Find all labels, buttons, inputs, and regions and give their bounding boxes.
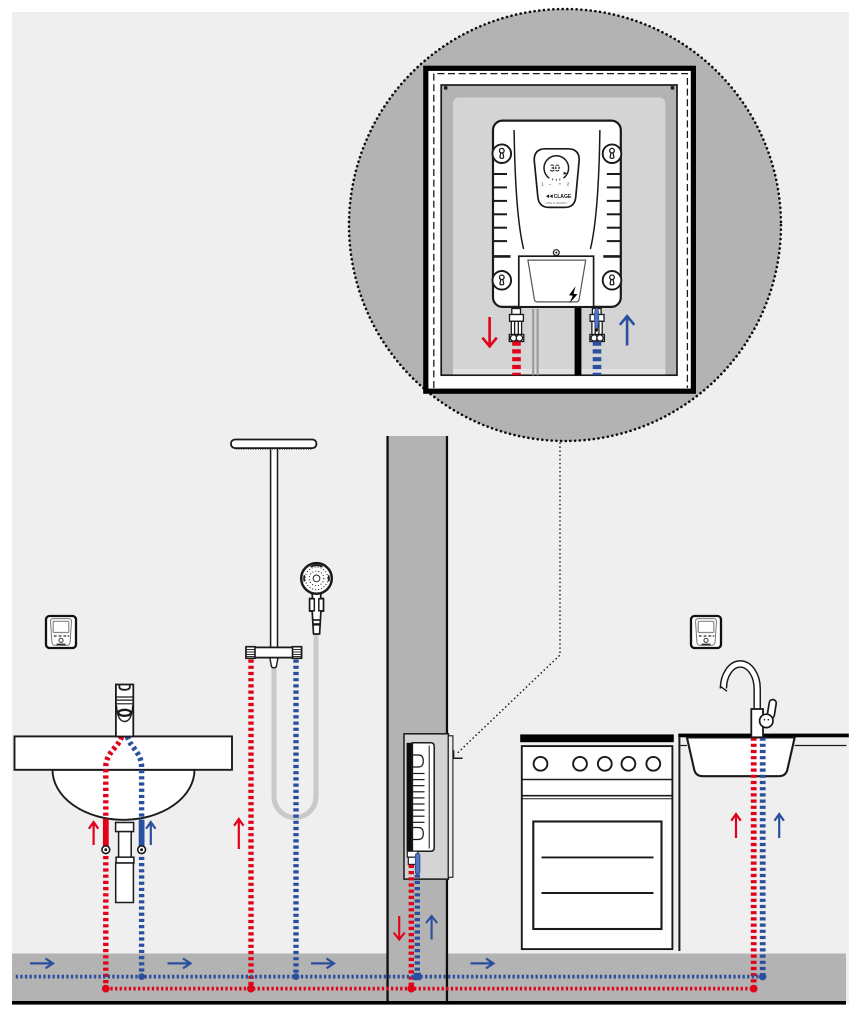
svg-text:2: 2 — [567, 181, 570, 186]
svg-text:+: + — [559, 181, 562, 186]
svg-text:1: 1 — [541, 181, 544, 186]
svg-text:–: – — [549, 181, 552, 186]
svg-text:CLAGE: CLAGE — [554, 194, 572, 200]
svg-text:MADE IN GERMANY: MADE IN GERMANY — [546, 202, 568, 205]
